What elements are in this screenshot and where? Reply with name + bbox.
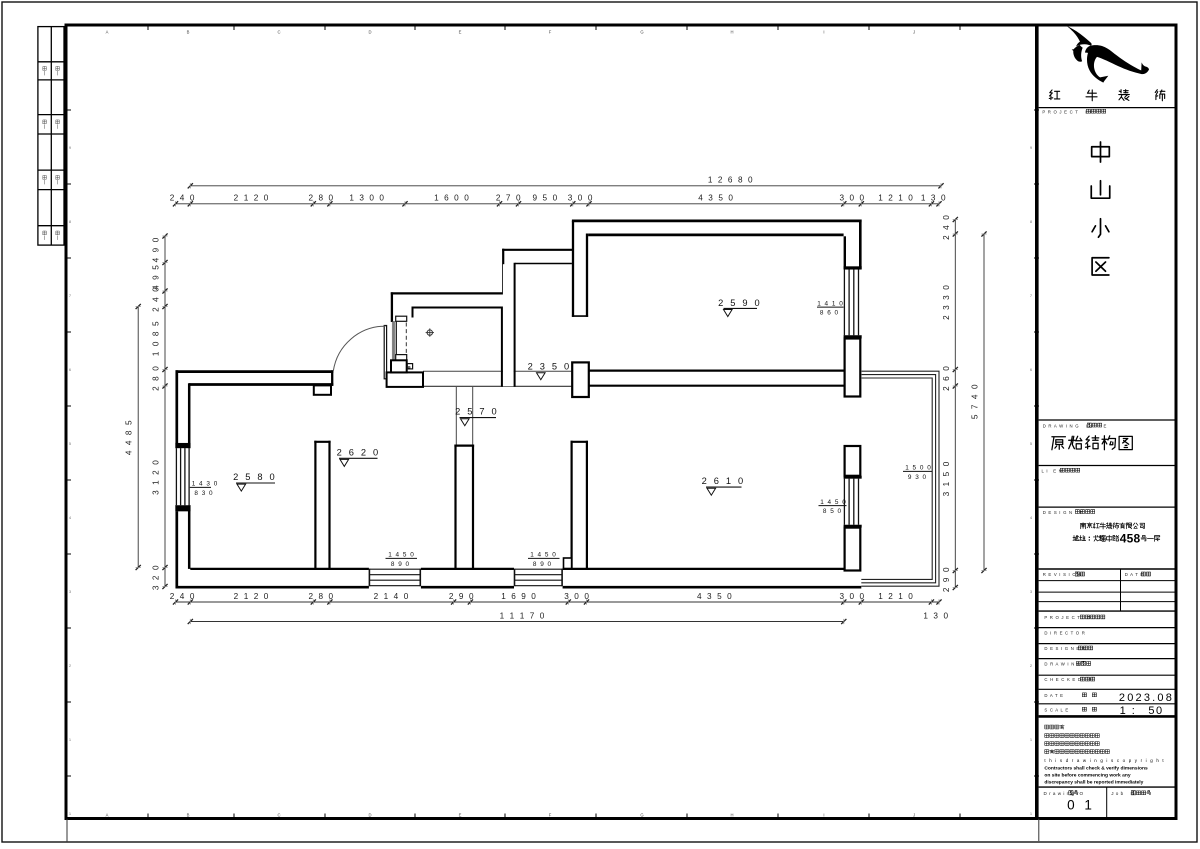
svg-text:C: C [277,30,280,35]
svg-text:2 5 7 0: 2 5 7 0 [455,407,499,417]
svg-text:C: C [277,813,280,818]
svg-text:O: O [1080,791,1084,796]
svg-text:1 6 9 0: 1 6 9 0 [501,592,537,601]
svg-text:2 3 3 0: 2 3 3 0 [942,284,951,320]
svg-text:2 5 8 0: 2 5 8 0 [233,472,277,482]
svg-text:L I E N: L I E N [1042,468,1063,473]
svg-text:2023.08: 2023.08 [1119,692,1174,704]
svg-text:1 2 1 0: 1 2 1 0 [878,592,914,601]
svg-text:0 1: 0 1 [1067,798,1095,813]
svg-text:2 8 0: 2 8 0 [308,194,334,203]
svg-text:4 3 5 0: 4 3 5 0 [697,592,733,601]
svg-text:H: H [730,30,733,35]
svg-text:1 6 0 0: 1 6 0 0 [434,194,470,203]
svg-text:D E S I G N E R: D E S I G N E R [1044,646,1085,651]
svg-text:D E S I G N F: D E S I G N F [1043,510,1083,515]
svg-text:B: B [187,813,190,818]
svg-text:1 5 0 0: 1 5 0 0 [905,465,932,472]
svg-text:1 4 5 0: 1 4 5 0 [530,552,557,559]
svg-text:A: A [106,813,109,818]
svg-text:3 1 2 0: 3 1 2 0 [152,459,161,495]
svg-text:2 3 5 0: 2 3 5 0 [528,362,572,372]
svg-text:3 0 0: 3 0 0 [839,194,865,203]
svg-text:1 4 5 0: 1 4 5 0 [388,552,415,559]
svg-text:1 3 0: 1 3 0 [923,611,949,620]
svg-text:8 5 0: 8 5 0 [823,508,842,515]
svg-text:2 1 2 0: 2 1 2 0 [234,194,270,203]
svg-text:E: E [1104,423,1107,428]
svg-text:8 6 0: 8 6 0 [820,310,839,317]
svg-text:D R A W I N G L I: D R A W I N G L I [1043,423,1093,428]
svg-text:D r a w i n g: D r a w i n g [1044,791,1075,796]
svg-text:H: H [730,813,733,818]
svg-text:1 4 3 0: 1 4 3 0 [192,481,219,488]
svg-text:A: A [106,30,109,35]
svg-text:1 4 1 0: 1 4 1 0 [817,300,844,307]
svg-text:D: D [368,813,371,818]
svg-text:458: 458 [1120,532,1141,546]
svg-text:9 3 0: 9 3 0 [908,474,927,481]
svg-text:F: F [549,813,552,818]
svg-text:50: 50 [1148,705,1163,717]
svg-text:2 7 0: 2 7 0 [496,194,522,203]
svg-text:1 0 8 5: 1 0 8 5 [152,320,161,356]
svg-text:8 3 0: 8 3 0 [194,490,213,497]
svg-text:G: G [640,813,643,818]
svg-text:3 0 0: 3 0 0 [568,194,594,203]
svg-text:D A T E: D A T E [1044,693,1063,698]
svg-text:8 9 0: 8 9 0 [391,561,410,568]
svg-text:3 0 0: 3 0 0 [839,592,865,601]
svg-text:1 1 1 7 0: 1 1 1 7 0 [500,611,546,620]
svg-text:2 6 1 0: 2 6 1 0 [702,476,746,486]
svg-text:8 9 0: 8 9 0 [533,561,552,568]
svg-text:F: F [549,30,552,35]
svg-text:2 8 0: 2 8 0 [308,592,334,601]
svg-text:J: J [913,30,915,35]
svg-text:S C A L E: S C A L E [1044,707,1069,712]
svg-text:discrepancy shall be reported: discrepancy shall be reported immediatel… [1044,780,1143,786]
svg-text:1 4 5 0: 1 4 5 0 [820,499,847,506]
svg-text:E: E [459,813,462,818]
svg-text:E: E [459,30,462,35]
svg-text:2 1 4 0: 2 1 4 0 [374,592,410,601]
svg-text:1 2 6 8 0: 1 2 6 8 0 [708,176,754,185]
svg-text:D R A W I N G: D R A W I N G [1044,662,1081,667]
svg-text:2 8 0: 2 8 0 [152,365,161,391]
svg-text:P R O J E C T L I: P R O J E C T L I [1042,109,1092,114]
svg-text:2 4 0: 2 4 0 [152,286,161,312]
svg-text:2 6 2 0: 2 6 2 0 [337,447,381,457]
svg-text:B: B [187,30,190,35]
svg-text:G: G [640,30,643,35]
svg-text:J: J [913,813,915,818]
svg-text:1 2 1 0: 1 2 1 0 [878,194,914,203]
svg-text:2 5 9 0: 2 5 9 0 [718,298,762,308]
svg-text:4 4 8 5: 4 4 8 5 [125,419,134,455]
svg-text:2 4 0: 2 4 0 [170,592,196,601]
svg-text:3 0 0: 3 0 0 [564,592,590,601]
svg-text:I: I [823,813,824,818]
svg-text:9 5 0: 9 5 0 [533,194,559,203]
svg-text:D: D [368,30,371,35]
svg-text:2 9 0: 2 9 0 [449,592,475,601]
svg-text:4 9 0: 4 9 0 [152,236,161,262]
svg-text:2 6 0: 2 6 0 [942,365,951,391]
svg-text:R E V I S I O N: R E V I S I O N [1043,572,1082,577]
svg-text:D I R E C T O R: D I R E C T O R [1044,631,1085,636]
svg-text:Contractors shall check & veri: Contractors shall check & verify dimensi… [1044,766,1148,772]
svg-text:t h i s d r a w i n g i s c: t h i s d r a w i n g i s c o p y r i g … [1044,758,1164,763]
svg-text:2 4 0: 2 4 0 [942,214,951,240]
svg-text:J o b N: J o b N [1111,791,1134,796]
svg-text:2 4 0: 2 4 0 [170,194,196,203]
svg-text:5 7 4 0: 5 7 4 0 [971,383,980,419]
svg-text:3 1 5 0: 3 1 5 0 [942,460,951,496]
svg-text:1 3 0 0: 1 3 0 0 [349,194,385,203]
svg-text:2 9 0: 2 9 0 [942,566,951,592]
svg-text:C H E C K E D R: C H E C K E D R [1044,677,1092,682]
svg-text:1 3 0: 1 3 0 [921,194,947,203]
svg-text:3 2 0: 3 2 0 [152,564,161,590]
svg-text:2 1 2 0: 2 1 2 0 [234,592,270,601]
svg-text:1 :: 1 : [1120,705,1137,717]
svg-text:on site before commencing work: on site before commencing work any [1044,773,1130,779]
svg-text:4 3 5 0: 4 3 5 0 [698,194,734,203]
svg-text:I: I [823,30,824,35]
